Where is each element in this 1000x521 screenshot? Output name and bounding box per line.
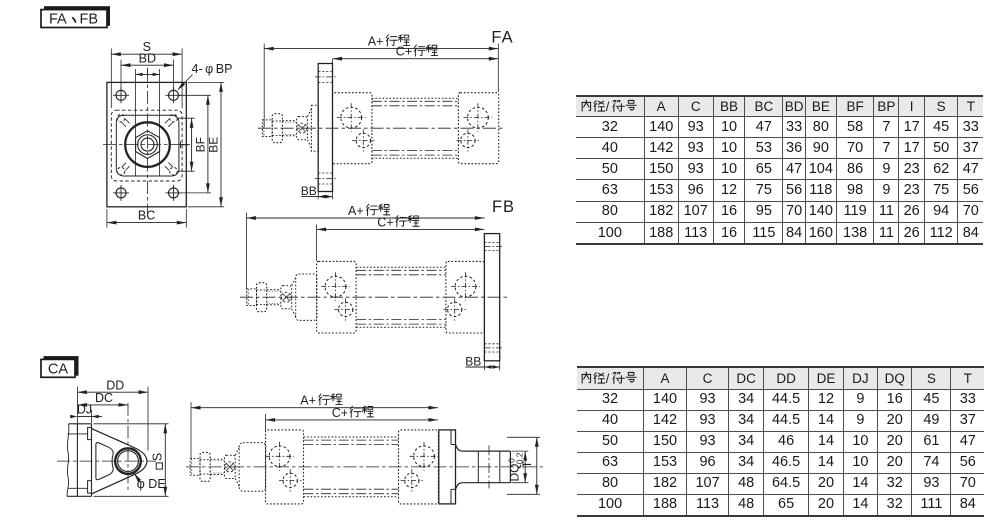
svg-text:/: / bbox=[606, 99, 610, 114]
svg-text:C+: C+ bbox=[396, 45, 412, 59]
svg-text:BC: BC bbox=[138, 209, 155, 223]
svg-text:C+: C+ bbox=[377, 215, 393, 229]
svg-text:BD: BD bbox=[139, 52, 156, 66]
svg-text:S: S bbox=[151, 453, 165, 461]
svg-text:A+: A+ bbox=[368, 35, 384, 49]
svg-text:FB: FB bbox=[492, 198, 515, 216]
svg-text:A+: A+ bbox=[348, 204, 364, 218]
svg-text:CA: CA bbox=[48, 362, 68, 378]
svg-text:FB: FB bbox=[80, 11, 99, 27]
svg-text:DC: DC bbox=[95, 391, 113, 405]
svg-text:FA: FA bbox=[491, 29, 513, 47]
svg-text:/: / bbox=[606, 371, 610, 386]
svg-text:C+: C+ bbox=[332, 406, 348, 420]
svg-text:FA: FA bbox=[49, 11, 67, 27]
svg-text:BF: BF bbox=[194, 137, 208, 152]
svg-text:4- φ BP: 4- φ BP bbox=[192, 62, 233, 76]
svg-text:φ DE: φ DE bbox=[137, 477, 166, 491]
svg-text:DJ: DJ bbox=[77, 403, 92, 417]
svg-text:BB: BB bbox=[465, 354, 481, 368]
svg-text:T: T bbox=[520, 460, 534, 468]
svg-text:BE: BE bbox=[207, 137, 221, 153]
svg-text:BB: BB bbox=[301, 184, 317, 198]
svg-text:A+: A+ bbox=[300, 394, 316, 408]
svg-text:T: T bbox=[177, 140, 191, 148]
